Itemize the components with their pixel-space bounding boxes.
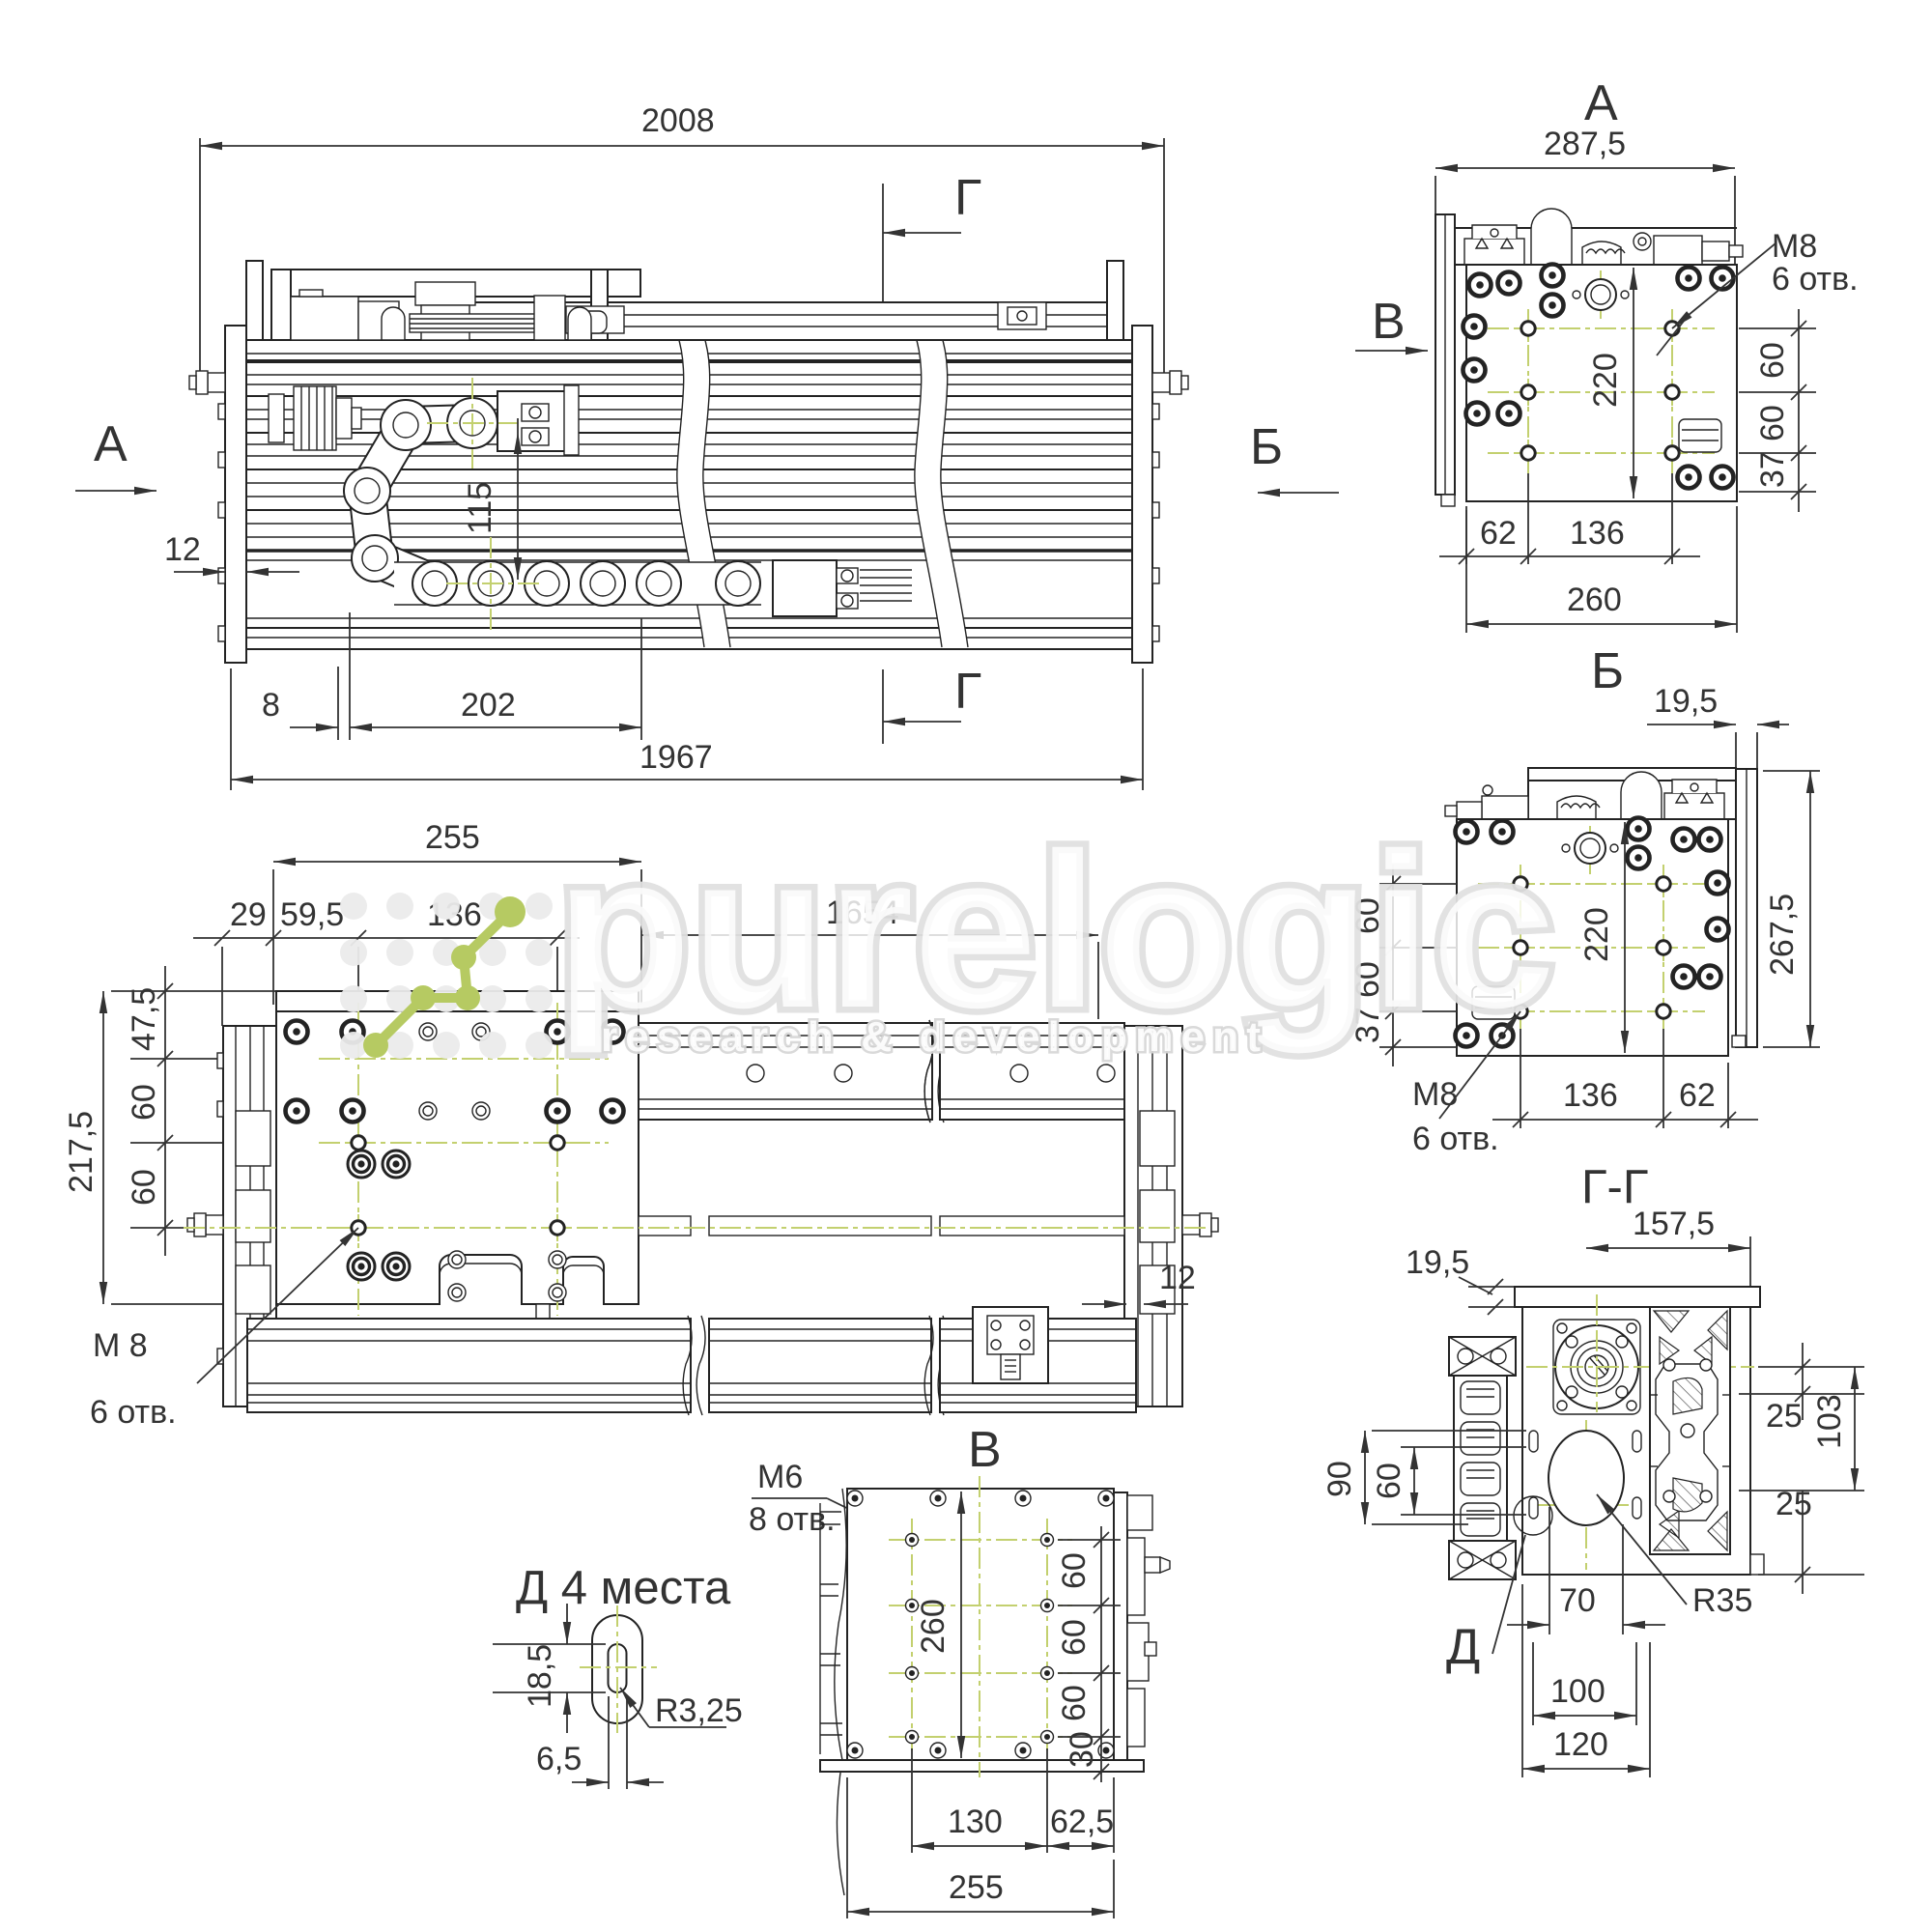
svg-text:60: 60 [1754,342,1791,379]
svg-text:60: 60 [1754,405,1791,441]
svg-text:В: В [1372,294,1406,350]
svg-text:130: 130 [948,1804,1003,1840]
svg-text:Д: Д [1446,1619,1480,1675]
svg-text:Б: Б [1591,643,1624,699]
svg-text:R35: R35 [1692,1582,1752,1619]
svg-text:62: 62 [1679,1077,1716,1114]
svg-text:287,5: 287,5 [1544,126,1626,162]
svg-text:R3,25: R3,25 [655,1692,743,1729]
svg-text:6 отв.: 6 отв. [1772,261,1859,298]
svg-text:30: 30 [1064,1731,1100,1768]
svg-text:29: 29 [230,896,267,933]
svg-text:М8: М8 [1412,1076,1458,1113]
svg-text:6,5: 6,5 [536,1741,582,1777]
svg-text:М 8: М 8 [93,1327,148,1364]
svg-text:М8: М8 [1772,228,1817,265]
svg-text:19,5: 19,5 [1406,1244,1469,1281]
svg-text:217,5: 217,5 [63,1111,99,1193]
svg-text:220: 220 [1587,353,1624,408]
svg-text:Б: Б [1250,419,1283,475]
svg-text:60: 60 [1056,1552,1093,1589]
svg-text:255: 255 [949,1869,1004,1906]
svg-text:60: 60 [1056,1685,1093,1721]
svg-text:70: 70 [1559,1582,1596,1619]
svg-text:267,5: 267,5 [1764,894,1801,976]
svg-text:59,5: 59,5 [280,896,344,933]
svg-text:6 отв.: 6 отв. [90,1394,177,1431]
svg-text:А: А [94,416,128,472]
svg-text:19,5: 19,5 [1654,683,1718,720]
svg-text:12: 12 [164,531,201,568]
svg-text:25: 25 [1776,1486,1812,1522]
svg-text:60: 60 [126,1084,162,1121]
svg-text:18,5: 18,5 [522,1644,558,1708]
svg-text:Г: Г [954,664,981,720]
svg-text:1967: 1967 [639,739,713,776]
svg-text:157,5: 157,5 [1633,1206,1715,1242]
svg-text:120: 120 [1553,1726,1608,1763]
svg-text:90: 90 [1321,1461,1358,1497]
svg-text:12: 12 [1159,1260,1196,1296]
svg-text:60: 60 [1371,1463,1407,1499]
svg-text:А: А [1584,75,1618,131]
svg-text:136: 136 [1570,515,1625,552]
svg-text:60: 60 [126,1169,162,1206]
svg-text:255: 255 [425,819,480,856]
svg-text:62,5: 62,5 [1050,1804,1114,1840]
svg-text:М6: М6 [757,1459,803,1495]
svg-text:100: 100 [1550,1673,1605,1710]
svg-text:8: 8 [262,687,280,724]
svg-text:37: 37 [1754,451,1791,488]
svg-text:Г: Г [954,170,981,226]
svg-text:47,5: 47,5 [126,987,162,1051]
svg-text:8 отв.: 8 отв. [749,1501,836,1538]
svg-text:25: 25 [1766,1398,1803,1435]
svg-text:220: 220 [1578,907,1615,962]
svg-text:60: 60 [1056,1619,1093,1656]
svg-text:Д 4 места: Д 4 места [516,1562,731,1614]
svg-text:research & development: research & development [601,1013,1268,1061]
svg-text:136: 136 [1563,1077,1618,1114]
svg-text:В: В [968,1422,1002,1478]
svg-text:202: 202 [461,687,516,724]
svg-text:260: 260 [915,1599,952,1654]
svg-text:103: 103 [1811,1394,1848,1449]
svg-text:6 отв.: 6 отв. [1412,1121,1499,1157]
svg-text:2008: 2008 [641,102,715,139]
svg-text:62: 62 [1480,515,1517,552]
svg-text:260: 260 [1567,582,1622,618]
svg-text:115: 115 [462,482,498,534]
